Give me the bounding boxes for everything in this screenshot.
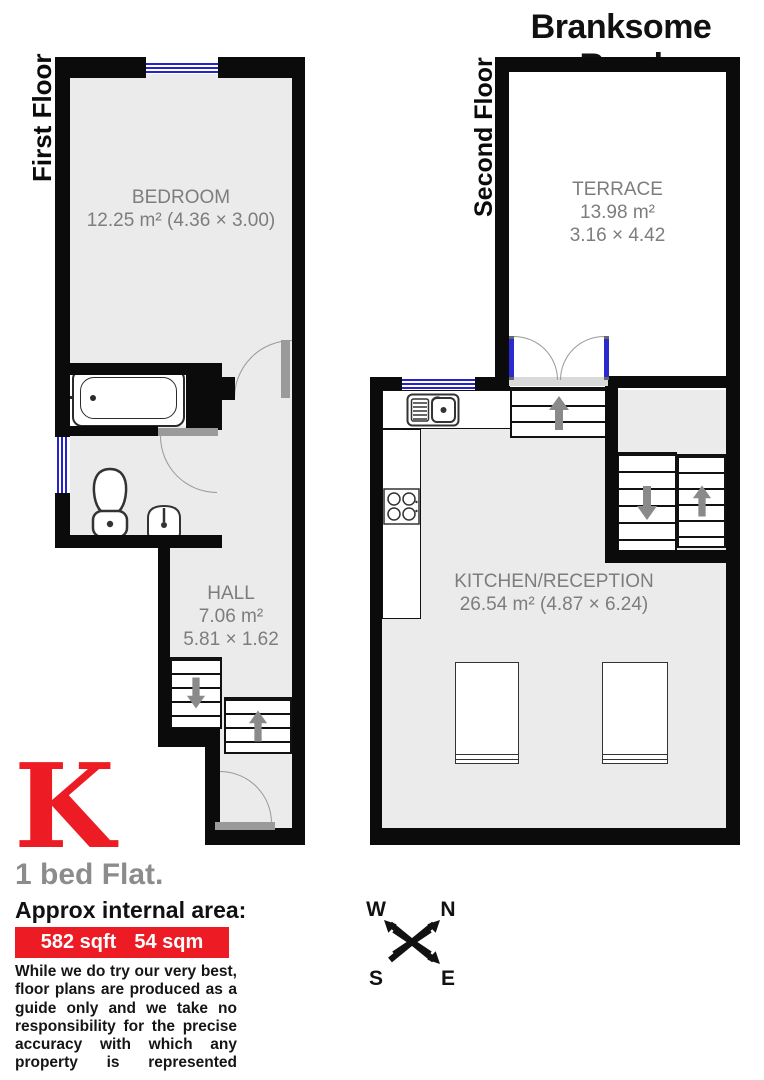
- floorplan-canvas: Branksome Road: [0, 0, 764, 1080]
- wall: [475, 377, 510, 390]
- toilet-icon: [88, 466, 132, 542]
- stairs-down: [170, 657, 222, 729]
- entry-threshold: [215, 822, 275, 830]
- agency-logo: K: [14, 752, 115, 862]
- compass-north: N: [440, 898, 455, 921]
- wall: [205, 747, 220, 828]
- bathroom-doorway: [158, 428, 218, 436]
- area-badge: 582 sqft 54 sqm: [15, 927, 229, 958]
- wall: [292, 78, 305, 828]
- compass-west: W: [366, 898, 386, 921]
- wall: [55, 535, 222, 548]
- area-heading: Approx internal area:: [15, 897, 246, 924]
- kitchen-label: KITCHEN/RECEPTION 26.54 m² (4.87 × 6.24): [382, 570, 726, 616]
- bathroom-window: [57, 437, 67, 493]
- terrace-door-leaf: [604, 336, 609, 380]
- hall-label: HALL 7.06 m² 5.81 × 1.62: [170, 582, 292, 651]
- hob-icon: [383, 488, 420, 525]
- stairs-up: [677, 454, 726, 548]
- kitchen-area: 26.54 m² (4.87 × 6.24): [382, 593, 726, 616]
- wall: [495, 57, 740, 72]
- wall: [370, 377, 402, 390]
- terrace-label: TERRACE 13.98 m² 3.16 × 4.42: [509, 178, 726, 247]
- area-sqft: 582 sqft: [41, 931, 117, 954]
- wall: [205, 828, 305, 845]
- wall: [220, 377, 235, 400]
- bedroom-label: BEDROOM 12.25 m² (4.36 × 3.00): [70, 186, 292, 232]
- bathtub-drain: [90, 395, 96, 401]
- wall: [218, 57, 305, 78]
- stairs-down: [617, 452, 677, 553]
- terrace-dims: 3.16 × 4.42: [509, 224, 726, 247]
- stairs-down-arrow-icon: [186, 677, 206, 709]
- furniture-edge: [455, 754, 519, 760]
- wall: [608, 376, 726, 388]
- bedroom-name: BEDROOM: [70, 186, 292, 209]
- kitchen-sink-icon: [406, 393, 460, 427]
- property-type: 1 bed Flat.: [15, 858, 163, 892]
- wall: [55, 78, 70, 437]
- furniture-rect: [602, 662, 668, 764]
- bedroom-area: 12.25 m² (4.36 × 3.00): [70, 209, 292, 232]
- kitchen-window: [402, 379, 475, 389]
- compass-icon: W N S E: [350, 876, 475, 1011]
- wall: [158, 548, 170, 730]
- wall: [605, 550, 726, 563]
- wall: [605, 377, 618, 563]
- wall: [186, 363, 222, 430]
- first-floor-label: First Floor: [27, 54, 57, 182]
- wall: [370, 828, 740, 845]
- terrace-door-leaf: [509, 336, 514, 380]
- stairs-to-terrace: [510, 387, 608, 438]
- terrace-name: TERRACE: [509, 178, 726, 201]
- landing-fill: [617, 390, 726, 452]
- stairs-up-arrow-icon: [548, 396, 570, 430]
- area-sqm: 54 sqm: [134, 931, 203, 954]
- hall-name: HALL: [170, 582, 292, 605]
- hall-area: 7.06 m²: [170, 605, 292, 628]
- wall: [370, 390, 382, 845]
- compass-east: E: [441, 967, 455, 990]
- hall-dims: 5.81 × 1.62: [170, 628, 292, 651]
- stairs-up-arrow-icon: [692, 485, 712, 517]
- stairs-up: [224, 697, 292, 754]
- wall: [726, 72, 740, 845]
- furniture-rect: [455, 662, 519, 764]
- disclaimer-text: While we do try our very best, floor pla…: [15, 963, 237, 1073]
- wall: [67, 426, 158, 436]
- bedroom-window: [146, 63, 218, 73]
- stairs-down-arrow-icon: [636, 486, 658, 520]
- wall: [158, 728, 220, 747]
- terrace-area: 13.98 m²: [509, 201, 726, 224]
- bathtub: [72, 369, 185, 427]
- furniture-edge: [602, 754, 668, 760]
- kitchen-name: KITCHEN/RECEPTION: [382, 570, 726, 593]
- second-floor-label: Second Floor: [470, 65, 498, 217]
- compass-south: S: [369, 967, 383, 990]
- entrance-doorway: [281, 340, 290, 398]
- wall: [55, 57, 146, 78]
- stairs-up-arrow-icon: [248, 710, 268, 742]
